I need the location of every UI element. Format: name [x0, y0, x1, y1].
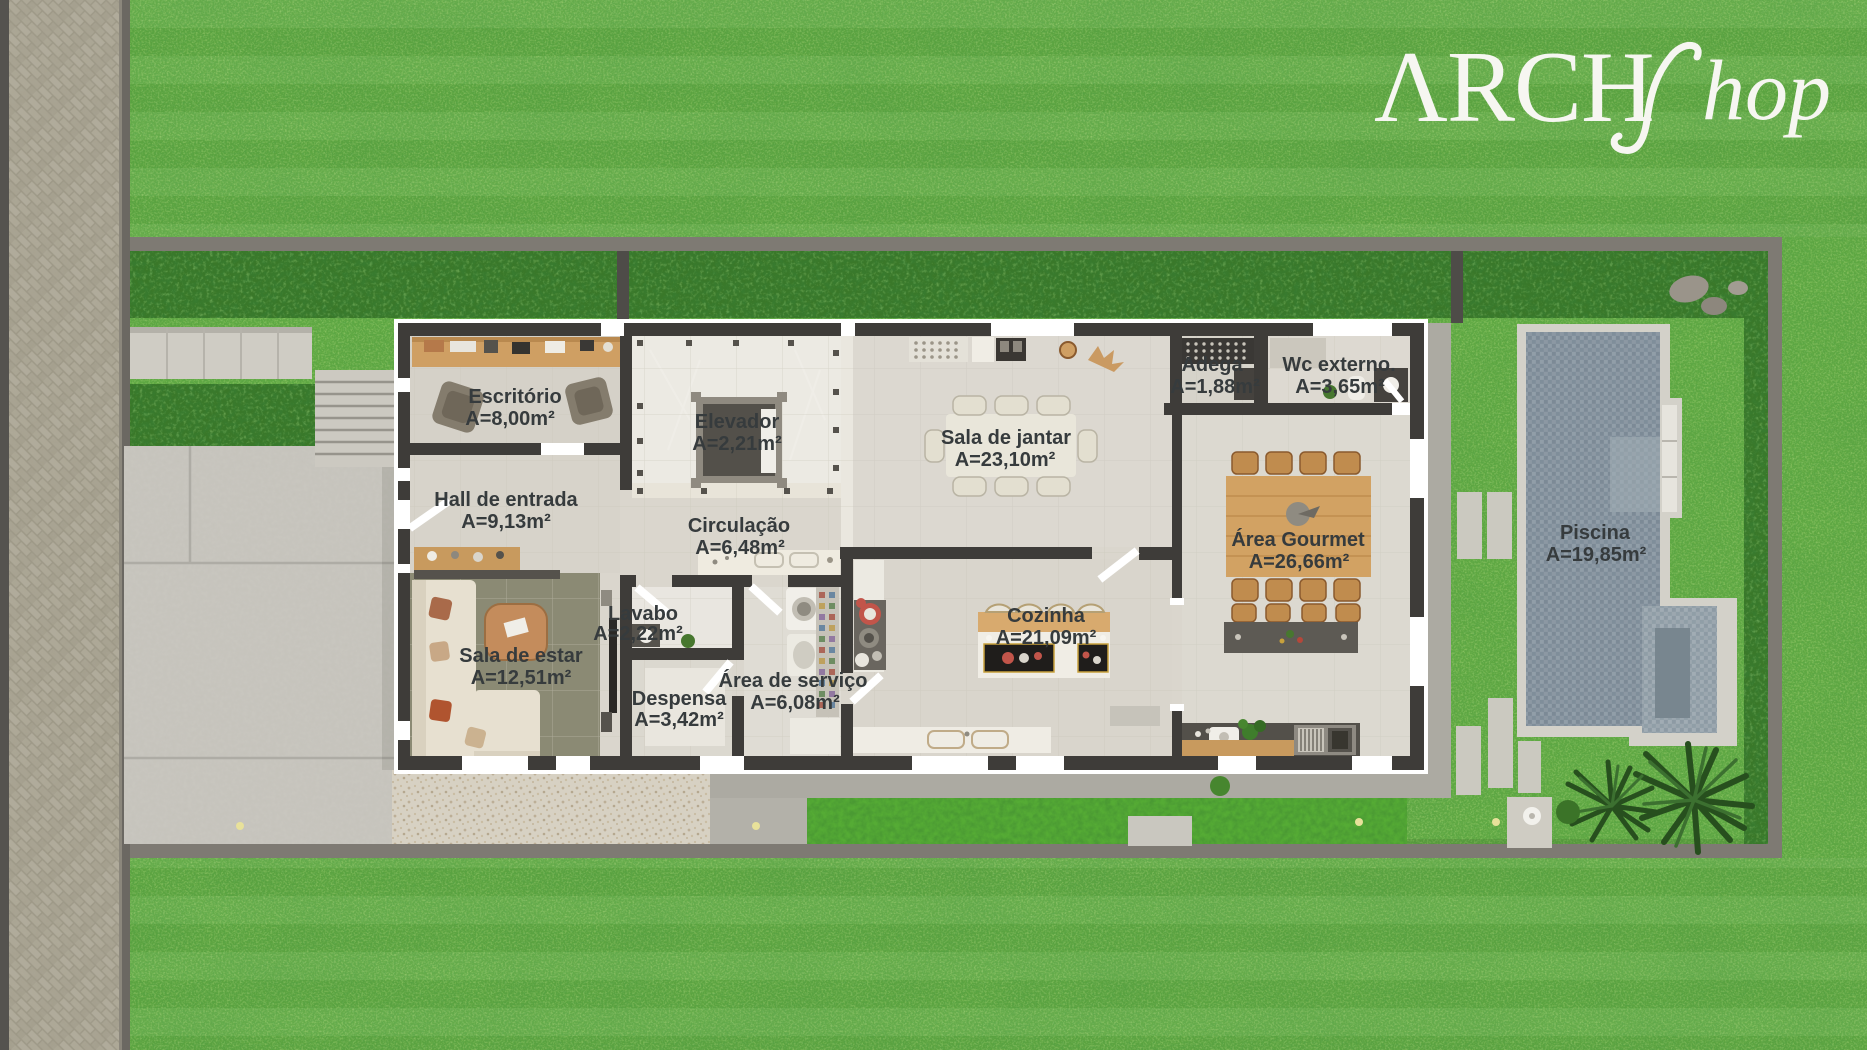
svg-text:A=3,42m²: A=3,42m² [634, 709, 724, 731]
svg-text:Sala de jantar: Sala de jantar [941, 427, 1071, 449]
svg-text:Despensa: Despensa [632, 688, 727, 710]
svg-text:hop: hop [1702, 42, 1831, 138]
svg-text:A=6,48m²: A=6,48m² [695, 537, 785, 559]
svg-text:A=2,22m²: A=2,22m² [593, 623, 683, 645]
svg-text:Adega: Adega [1181, 354, 1243, 376]
svg-text:A=21,09m²: A=21,09m² [996, 627, 1097, 649]
svg-text:A=19,85m²: A=19,85m² [1546, 544, 1647, 566]
svg-text:Wc externo.: Wc externo. [1282, 354, 1395, 376]
svg-text:Escritório: Escritório [468, 386, 561, 408]
svg-text:Área Gourmet: Área Gourmet [1231, 528, 1365, 551]
svg-text:A=6,08m²: A=6,08m² [750, 692, 840, 714]
svg-text:A=1,88m²: A=1,88m² [1170, 376, 1260, 398]
svg-text:ΛRCH: ΛRCH [1374, 31, 1654, 144]
svg-text:A=3,65m²: A=3,65m² [1295, 376, 1385, 398]
svg-text:Circulação: Circulação [688, 515, 790, 537]
svg-text:A=8,00m²: A=8,00m² [465, 408, 555, 430]
svg-text:Piscina: Piscina [1560, 522, 1631, 544]
svg-text:Elevador: Elevador [695, 411, 780, 433]
svg-text:Sala de estar: Sala de estar [459, 645, 583, 667]
svg-text:A=26,66m²: A=26,66m² [1249, 551, 1350, 573]
svg-text:A=9,13m²: A=9,13m² [461, 511, 551, 533]
svg-text:Cozinha: Cozinha [1007, 605, 1086, 627]
svg-text:Área de serviço: Área de serviço [719, 669, 868, 692]
svg-text:A=2,21m²: A=2,21m² [692, 433, 782, 455]
svg-text:A=12,51m²: A=12,51m² [471, 667, 572, 689]
svg-text:Hall de entrada: Hall de entrada [434, 489, 578, 511]
svg-text:Lavabo: Lavabo [608, 603, 678, 625]
svg-text:A=23,10m²: A=23,10m² [955, 449, 1056, 471]
